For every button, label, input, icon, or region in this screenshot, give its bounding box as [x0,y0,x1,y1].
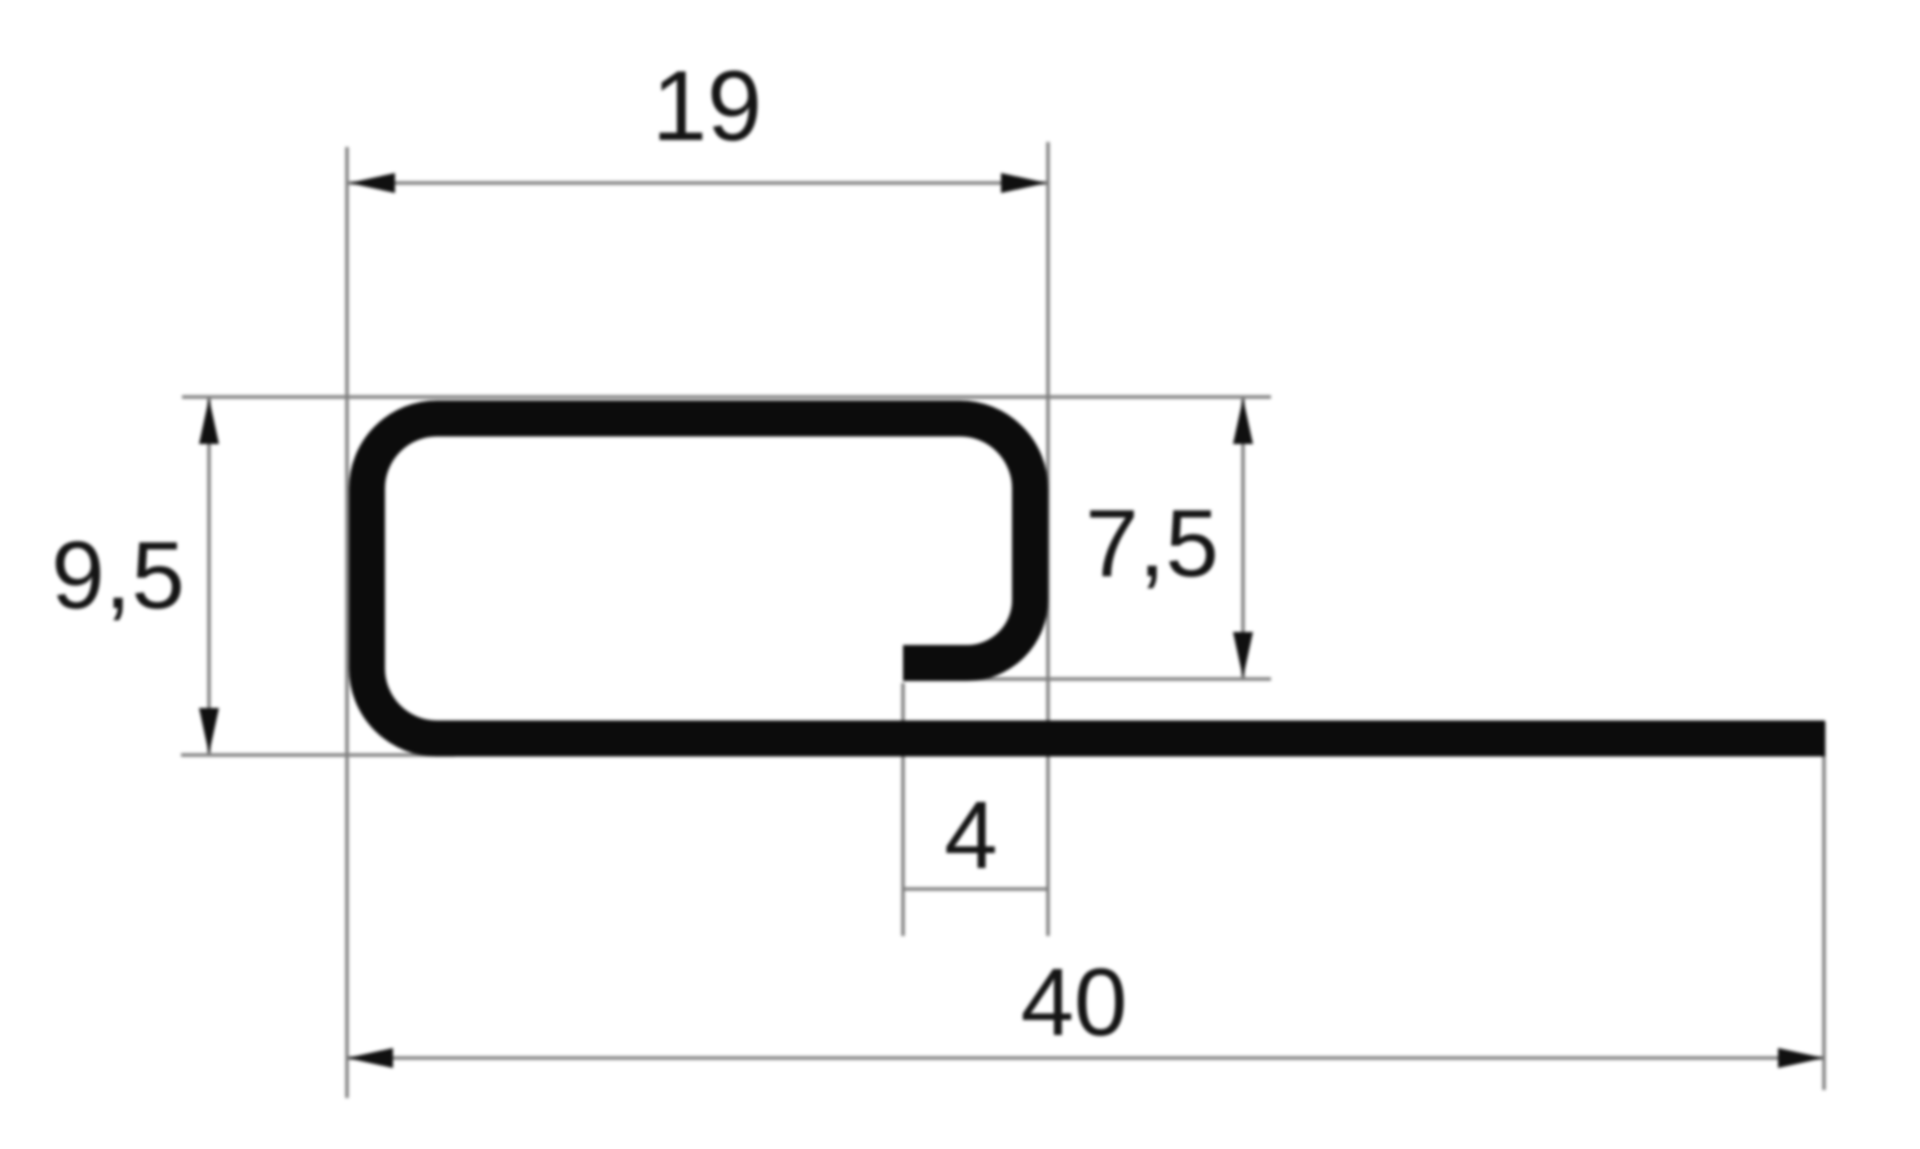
svg-text:40: 40 [1021,949,1128,1056]
svg-text:9,5: 9,5 [51,522,184,629]
svg-text:4: 4 [944,782,997,889]
svg-text:19: 19 [652,50,762,161]
svg-text:7,5: 7,5 [1085,490,1218,597]
